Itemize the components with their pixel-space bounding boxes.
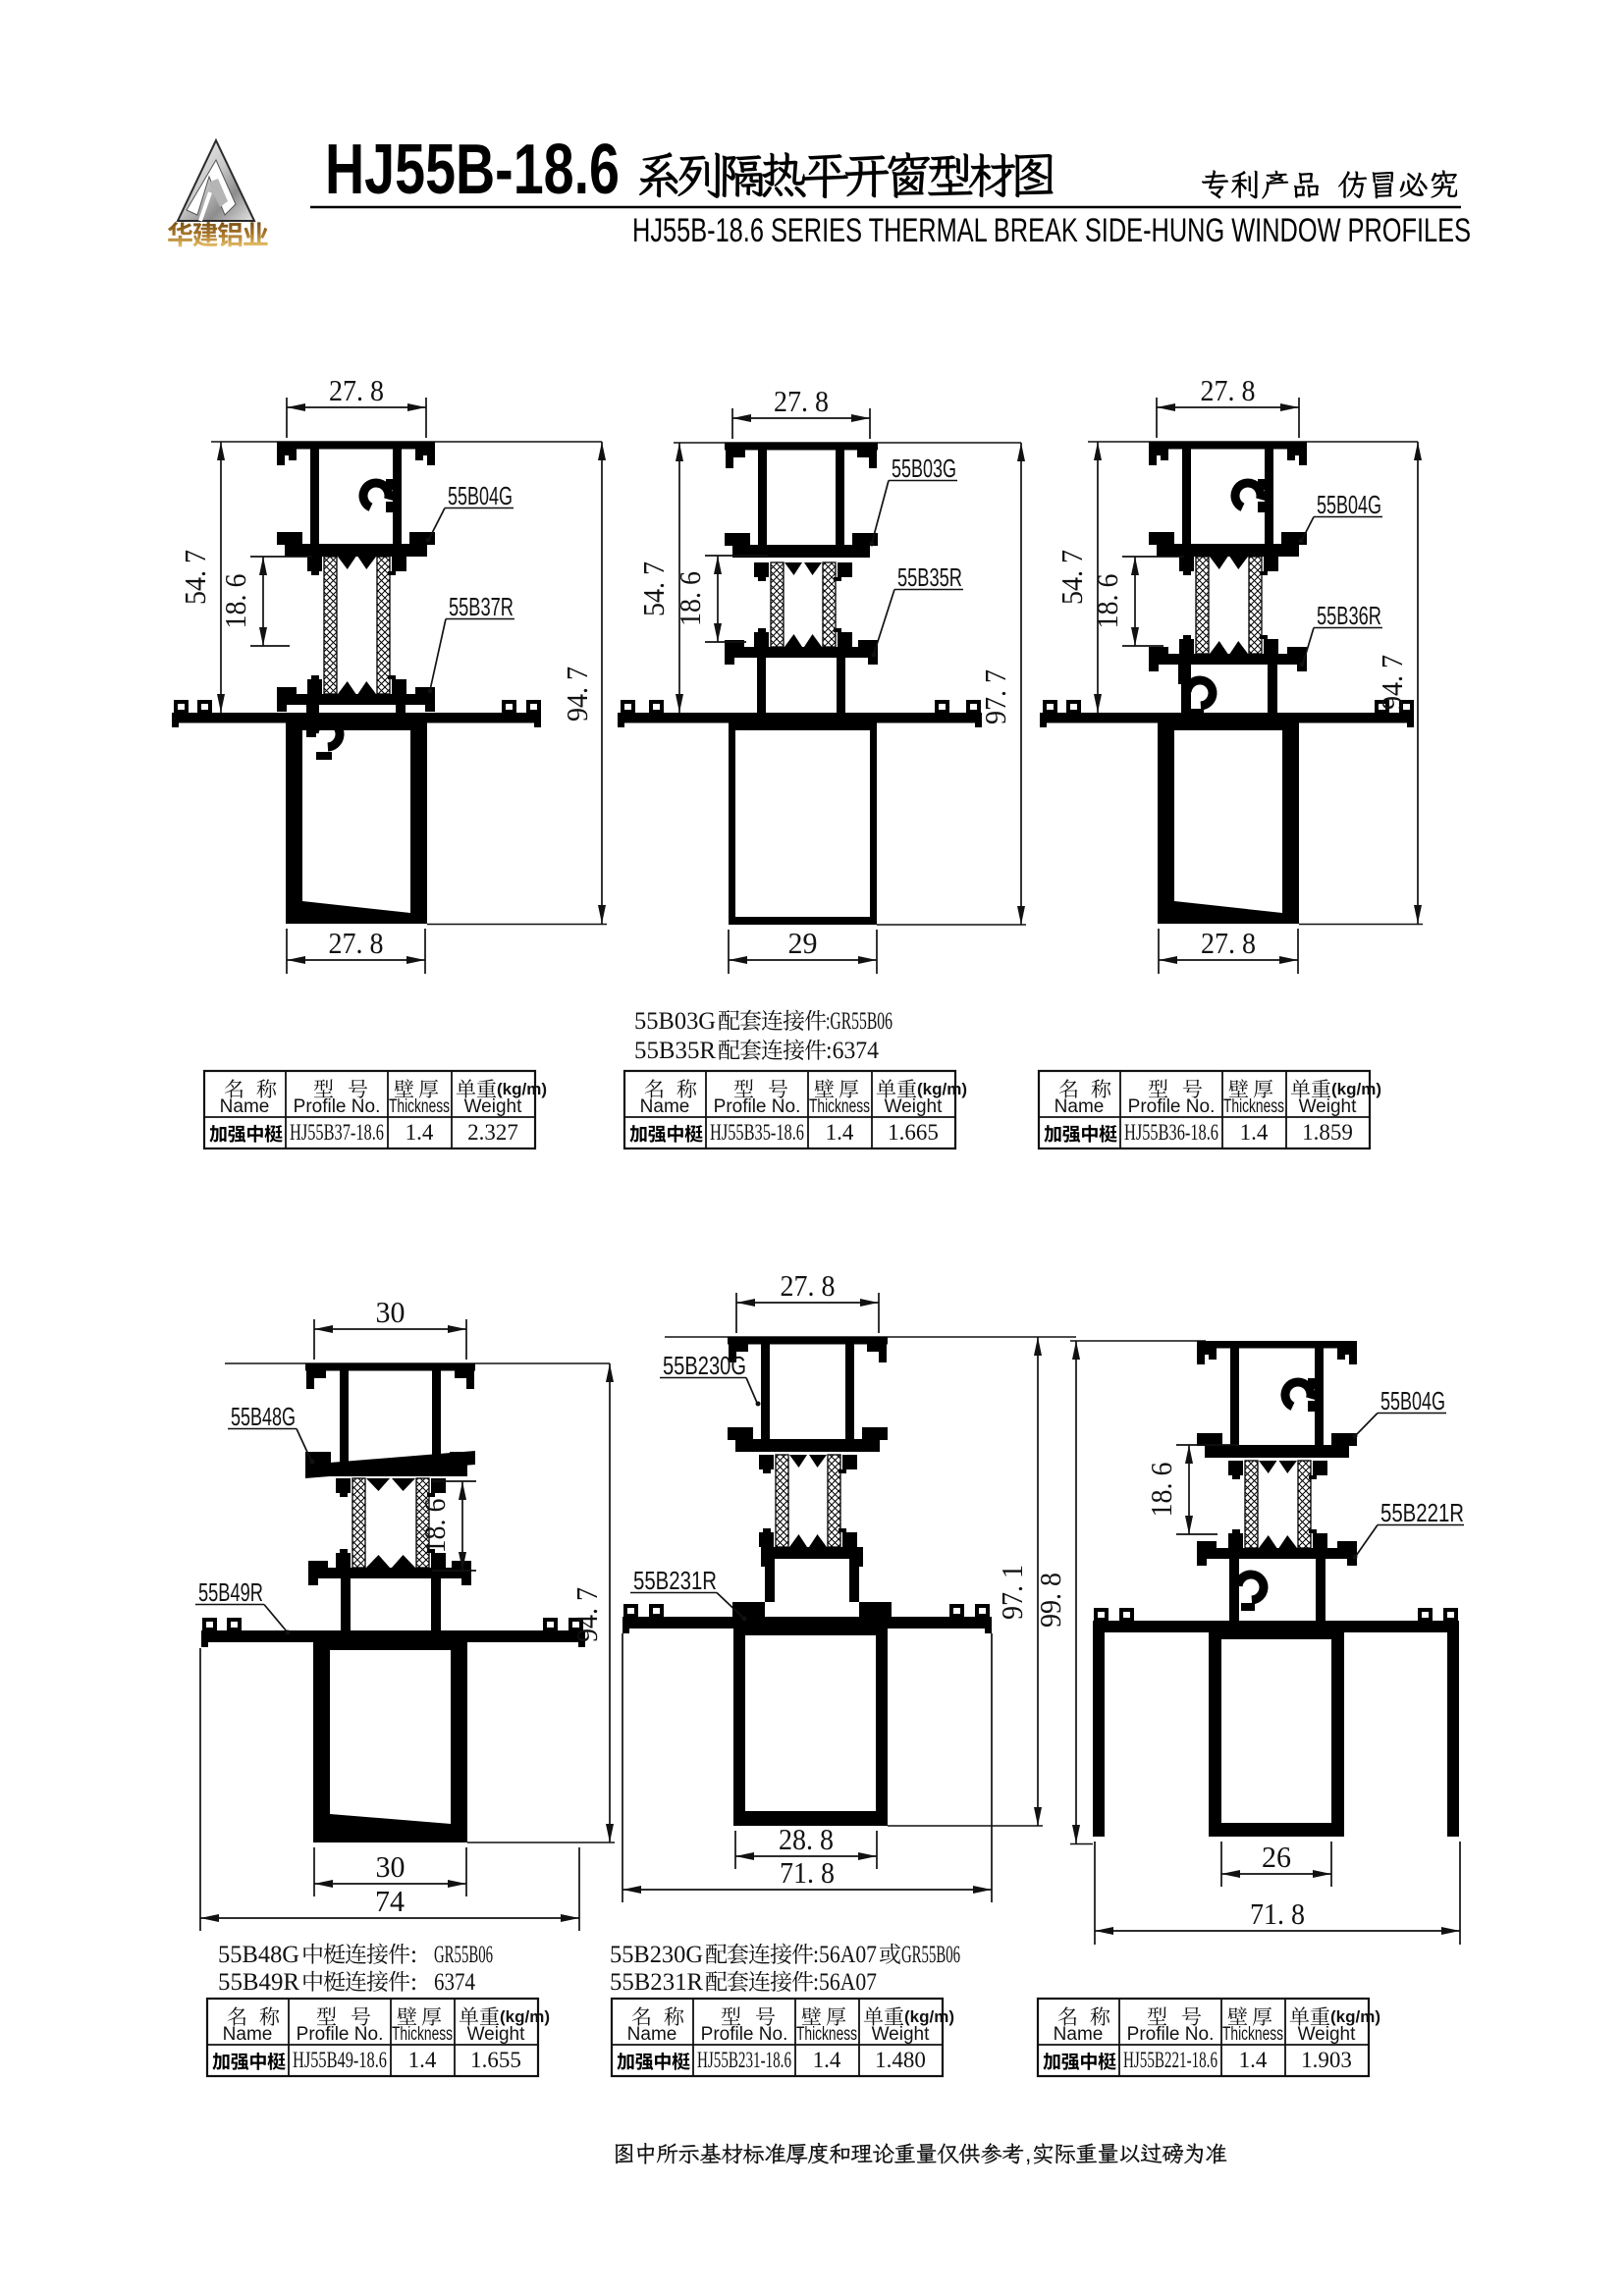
svg-text:1.4: 1.4 (1239, 2048, 1268, 2072)
svg-text:Thickness: Thickness (809, 1096, 870, 1117)
svg-text:28. 8: 28. 8 (779, 1822, 834, 1856)
svg-text::: : (410, 1969, 417, 1996)
svg-text:55B231R: 55B231R (633, 1566, 717, 1595)
svg-text:Name: Name (640, 1096, 690, 1117)
svg-text:99. 8: 99. 8 (1033, 1573, 1067, 1628)
svg-text:Weight: Weight (1298, 2024, 1357, 2045)
svg-text::: : (410, 1942, 417, 1968)
svg-text:1.4: 1.4 (1240, 1120, 1269, 1145)
svg-text:1.903: 1.903 (1301, 2048, 1352, 2072)
svg-text:Weight: Weight (464, 1096, 523, 1117)
svg-text:55B04G: 55B04G (448, 481, 513, 510)
svg-text:HJ55B36-18.6: HJ55B36-18.6 (1124, 1120, 1218, 1145)
svg-text:94. 7: 94. 7 (560, 667, 594, 721)
svg-text:Profile No.: Profile No. (1128, 1096, 1216, 1117)
svg-text:Name: Name (220, 1096, 270, 1117)
svg-text:97. 1: 97. 1 (995, 1565, 1029, 1620)
svg-text:55B49R: 55B49R (218, 1969, 299, 1996)
svg-text:71. 8: 71. 8 (780, 1855, 835, 1890)
svg-text:1.665: 1.665 (888, 1120, 939, 1145)
svg-text:27. 8: 27. 8 (329, 926, 384, 960)
svg-text:30: 30 (376, 1295, 406, 1329)
svg-text:HJ55B221-18.6: HJ55B221-18.6 (1123, 2048, 1217, 2072)
svg-text:Name: Name (1055, 1096, 1105, 1117)
svg-text:Name: Name (223, 2024, 273, 2045)
svg-text:71. 8: 71. 8 (1250, 1896, 1305, 1931)
svg-text:Name: Name (627, 2024, 677, 2045)
svg-text:1.480: 1.480 (875, 2048, 926, 2072)
svg-text:1.859: 1.859 (1302, 1120, 1353, 1145)
svg-text:27. 8: 27. 8 (1201, 373, 1256, 407)
svg-text:97. 7: 97. 7 (978, 669, 1012, 724)
svg-text:Weight: Weight (467, 2024, 526, 2045)
svg-text:27. 8: 27. 8 (781, 1268, 836, 1303)
svg-text:Profile No.: Profile No. (714, 1096, 801, 1117)
svg-text:18. 6: 18. 6 (1090, 574, 1124, 629)
svg-text::56A07: :56A07 (813, 1969, 877, 1996)
svg-text:55B03G: 55B03G (892, 454, 956, 483)
svg-text:55B04G: 55B04G (1380, 1386, 1445, 1415)
svg-text:Weight: Weight (1299, 1096, 1358, 1117)
svg-text:Thickness: Thickness (1223, 1096, 1284, 1117)
svg-text:29: 29 (788, 926, 818, 960)
svg-text:55B37R: 55B37R (449, 592, 514, 621)
svg-text:Profile No.: Profile No. (294, 1096, 381, 1117)
svg-text:Profile No.: Profile No. (297, 2024, 384, 2045)
svg-text:1.4: 1.4 (406, 1120, 434, 1145)
svg-text:74: 74 (375, 1884, 405, 1918)
svg-text::56A07: :56A07 (813, 1942, 877, 1968)
svg-text:18. 6: 18. 6 (1144, 1463, 1178, 1518)
svg-text:2.327: 2.327 (467, 1120, 518, 1145)
svg-text:Thickness: Thickness (1222, 2024, 1283, 2045)
svg-text::GR55B06: :GR55B06 (826, 1008, 893, 1035)
svg-text:55B49R: 55B49R (198, 1577, 263, 1607)
svg-text:55B48G: 55B48G (218, 1942, 299, 1968)
svg-text:55B48G: 55B48G (231, 1402, 296, 1431)
svg-text:Profile No.: Profile No. (701, 2024, 788, 2045)
svg-text:Thickness: Thickness (796, 2024, 857, 2045)
svg-text:HJ55B-18.6: HJ55B-18.6 (325, 131, 620, 209)
svg-text:94. 7: 94. 7 (1375, 655, 1409, 710)
svg-text:HJ55B37-18.6: HJ55B37-18.6 (290, 1120, 384, 1145)
svg-text:HJ55B35-18.6: HJ55B35-18.6 (710, 1120, 804, 1145)
svg-text:Thickness: Thickness (389, 1096, 450, 1117)
svg-text:1.4: 1.4 (826, 1120, 854, 1145)
svg-text:GR55B06: GR55B06 (434, 1942, 493, 1968)
svg-text:1.4: 1.4 (408, 2048, 437, 2072)
svg-text:18. 6: 18. 6 (417, 1499, 452, 1554)
svg-text:54. 7: 54. 7 (178, 550, 212, 605)
svg-text:55B35R: 55B35R (634, 1038, 716, 1064)
svg-text:55B230G: 55B230G (610, 1942, 703, 1968)
svg-text:,: , (1025, 2141, 1031, 2166)
svg-text:94. 7: 94. 7 (569, 1587, 604, 1642)
svg-text:54. 7: 54. 7 (636, 561, 671, 616)
svg-text::6374: :6374 (826, 1038, 879, 1064)
svg-text:Thickness: Thickness (392, 2024, 453, 2045)
svg-text:55B230G: 55B230G (663, 1351, 746, 1380)
svg-text:27. 8: 27. 8 (329, 373, 384, 407)
svg-text:Weight: Weight (872, 2024, 931, 2045)
svg-text:26: 26 (1262, 1840, 1291, 1874)
svg-text:1.655: 1.655 (470, 2048, 521, 2072)
svg-text:54. 7: 54. 7 (1055, 550, 1089, 605)
svg-text:1.4: 1.4 (813, 2048, 841, 2072)
svg-text:18. 6: 18. 6 (673, 571, 707, 626)
svg-text:HJ55B231-18.6: HJ55B231-18.6 (697, 2048, 791, 2072)
svg-text:55B03G: 55B03G (634, 1008, 716, 1035)
svg-text:Profile No.: Profile No. (1127, 2024, 1215, 2045)
svg-text:18. 6: 18. 6 (218, 574, 252, 629)
svg-text:27. 8: 27. 8 (1201, 926, 1256, 960)
svg-text:HJ55B-18.6 SERIES THERMAL BREA: HJ55B-18.6 SERIES THERMAL BREAK SIDE-HUN… (632, 212, 1471, 249)
svg-text:55B04G: 55B04G (1317, 490, 1381, 519)
svg-text:Weight: Weight (885, 1096, 944, 1117)
svg-text:55B36R: 55B36R (1317, 601, 1381, 630)
svg-text:HJ55B49-18.6: HJ55B49-18.6 (293, 2048, 387, 2072)
svg-text:55B231R: 55B231R (610, 1969, 703, 1996)
svg-text:27. 8: 27. 8 (774, 384, 829, 418)
svg-text:55B221R: 55B221R (1380, 1498, 1464, 1527)
svg-text:55B35R: 55B35R (897, 562, 962, 592)
svg-text:GR55B06: GR55B06 (901, 1942, 960, 1968)
svg-text:Name: Name (1054, 2024, 1104, 2045)
svg-text:6374: 6374 (434, 1969, 475, 1996)
svg-text:30: 30 (376, 1849, 406, 1884)
